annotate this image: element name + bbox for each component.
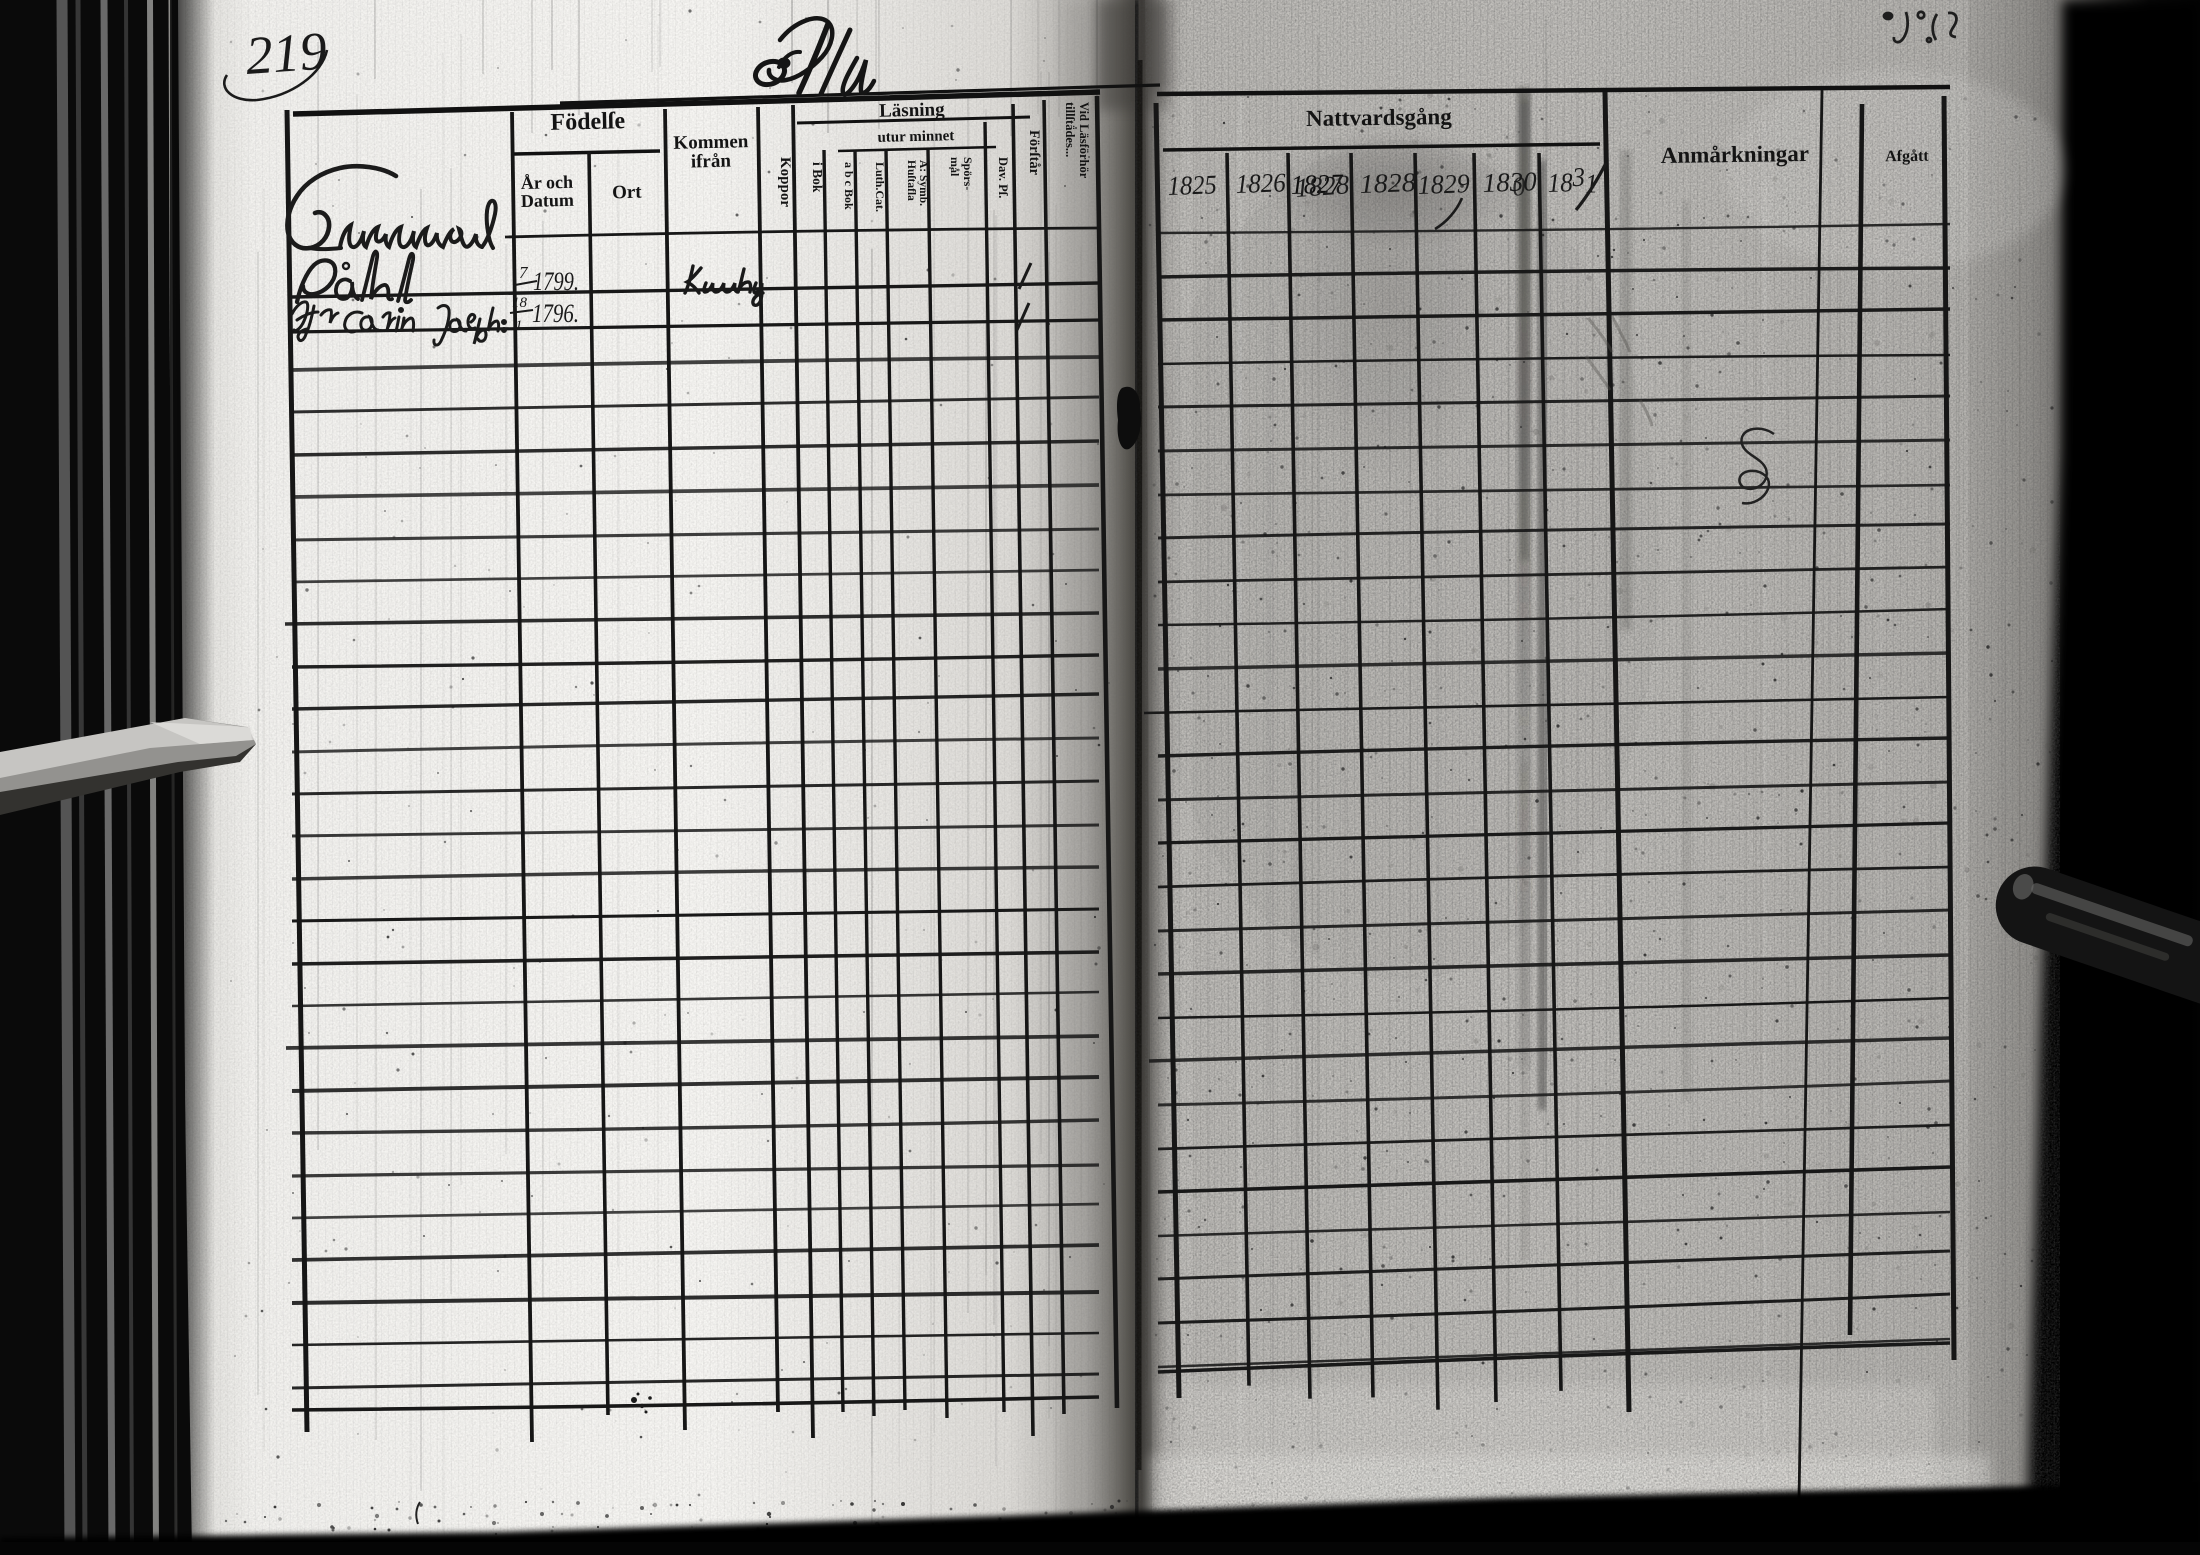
svg-text:Koppor: Koppor — [777, 157, 793, 207]
svg-text:18: 18 — [512, 295, 528, 311]
svg-text:Ort: Ort — [612, 182, 643, 204]
svg-text:Förſtår: Förſtår — [1026, 130, 1042, 176]
svg-text:utur minnet: utur minnet — [877, 128, 954, 146]
svg-text:1: 1 — [515, 318, 523, 334]
svg-text:Dav. Pſ.: Dav. Pſ. — [996, 157, 1010, 198]
svg-text:a b c Bok: a b c Bok — [842, 162, 856, 210]
svg-text:1829: 1829 — [1417, 168, 1470, 200]
svg-text:219: 219 — [244, 20, 329, 86]
svg-text:1828: 1828 — [1359, 167, 1417, 199]
svg-text:1828: 1828 — [1294, 169, 1350, 203]
svg-text:Luth.Cat.: Luth.Cat. — [873, 162, 887, 212]
svg-text:Afgått: Afgått — [1885, 148, 1929, 166]
svg-text:Anmårkningar: Anmårkningar — [1661, 141, 1810, 168]
svg-text:Datum: Datum — [521, 190, 574, 211]
svg-text:1825: 1825 — [1167, 169, 1217, 201]
svg-text:1830: 1830 — [1482, 166, 1538, 198]
svg-text:1796.: 1796. — [532, 299, 579, 328]
svg-text:Födelſe: Födelſe — [550, 108, 626, 136]
svg-text:A: Symb.Huſtafla: A: Symb.Huſtafla — [905, 160, 929, 206]
svg-text:Nattvardsgång: Nattvardsgång — [1306, 104, 1453, 131]
svg-text:1826: 1826 — [1235, 167, 1286, 199]
svg-text:i Bok: i Bok — [810, 162, 825, 193]
svg-text:ifrån: ifrån — [691, 151, 732, 173]
svg-text:1799.: 1799. — [533, 267, 579, 296]
svg-text:Läsning: Läsning — [879, 99, 945, 121]
